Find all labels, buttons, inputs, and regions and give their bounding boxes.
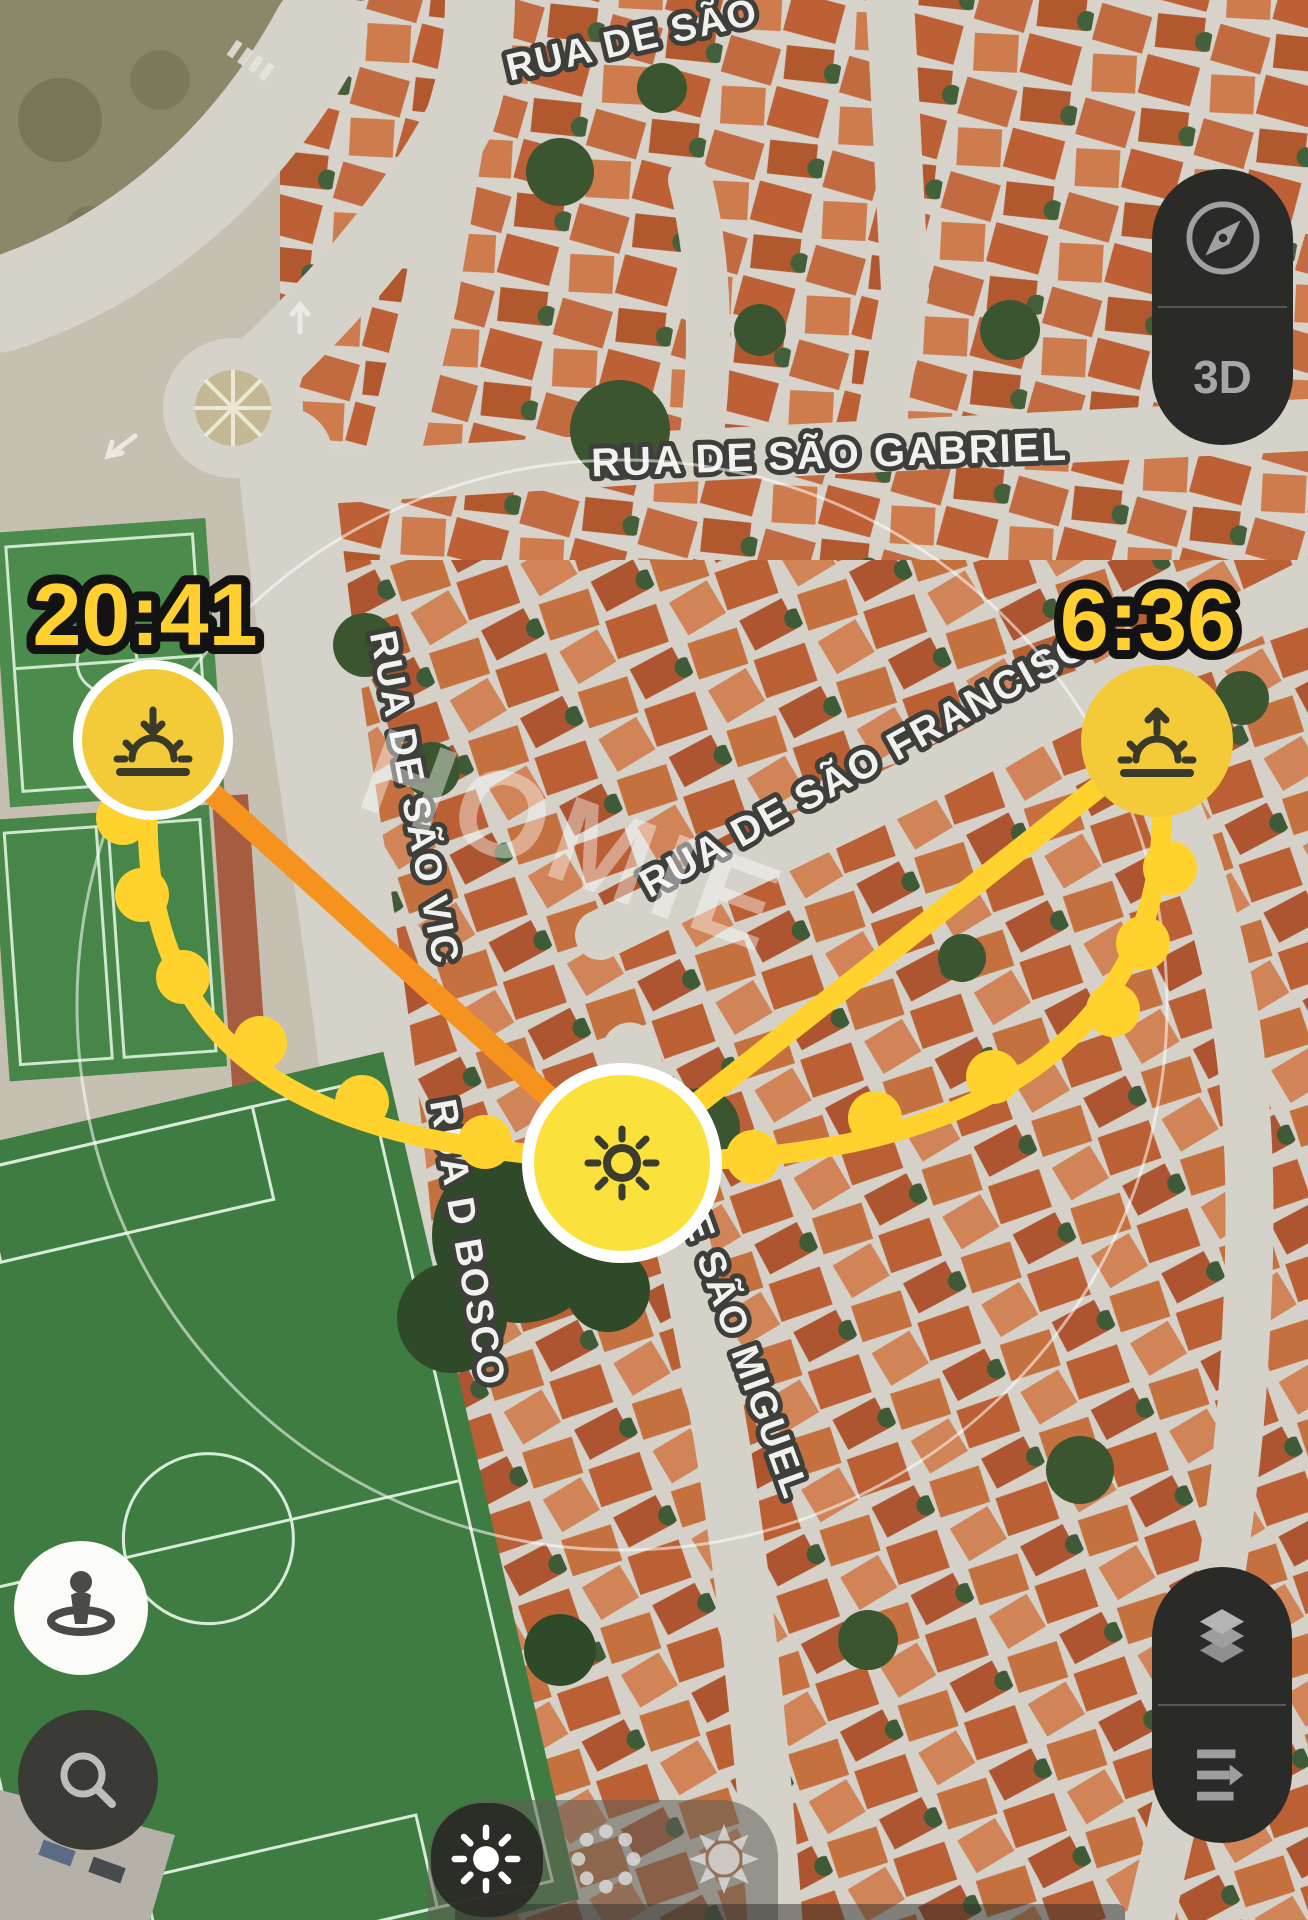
view-3d-button[interactable]: 3D	[1152, 308, 1293, 445]
sunrise-time-label: 6:36	[1060, 570, 1236, 669]
map-view-controls: 3D	[1152, 169, 1293, 445]
sun-mode-button[interactable]	[428, 1800, 544, 1918]
street-view-button[interactable]	[14, 1541, 148, 1675]
sun-mode-icon	[440, 1813, 532, 1905]
dotted-circle-mode-button[interactable]	[548, 1800, 664, 1918]
mode-toolbar	[428, 1800, 778, 1920]
search-icon	[38, 1730, 138, 1830]
map-layer-controls	[1152, 1567, 1292, 1843]
sunset-marker[interactable]	[73, 660, 233, 820]
layers-icon	[1174, 1588, 1270, 1684]
compass-icon	[1175, 190, 1271, 286]
roundabout	[163, 338, 303, 478]
sunrise-marker[interactable]	[1081, 665, 1233, 817]
route-list-button[interactable]	[1152, 1706, 1292, 1843]
sunburst-mode-button[interactable]	[666, 1800, 782, 1918]
compass-button[interactable]	[1152, 169, 1293, 306]
search-button[interactable]	[18, 1710, 158, 1850]
satellite-map[interactable]: RUA DE SÃO RUA DE SÃO GABRIEL RUA DE SÃO…	[0, 0, 1308, 1920]
bottom-sheet-edge[interactable]	[455, 1904, 1125, 1920]
street-view-pegman-icon	[31, 1558, 131, 1658]
sunburst-mode-icon	[678, 1813, 770, 1905]
route-list-icon	[1174, 1727, 1270, 1823]
layers-button[interactable]	[1152, 1567, 1292, 1704]
current-sun-marker[interactable]	[522, 1063, 722, 1263]
app-screen: RUA DE SÃO RUA DE SÃO GABRIEL RUA DE SÃO…	[0, 0, 1308, 1920]
dotted-circle-mode-icon	[560, 1813, 652, 1905]
sunset-time-label: 20:41	[32, 565, 257, 664]
view-3d-label: 3D	[1193, 350, 1252, 404]
